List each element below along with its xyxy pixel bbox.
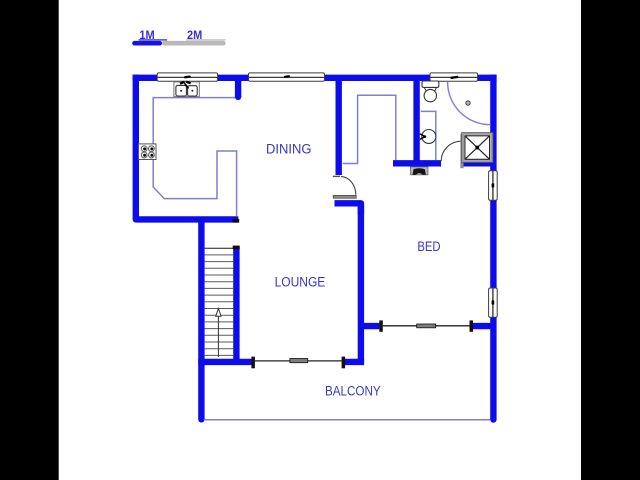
svg-text:DINING: DINING bbox=[266, 142, 312, 157]
svg-text:LOUNGE: LOUNGE bbox=[275, 274, 326, 289]
svg-text:BED: BED bbox=[417, 239, 440, 254]
svg-text:BALCONY: BALCONY bbox=[325, 384, 381, 399]
